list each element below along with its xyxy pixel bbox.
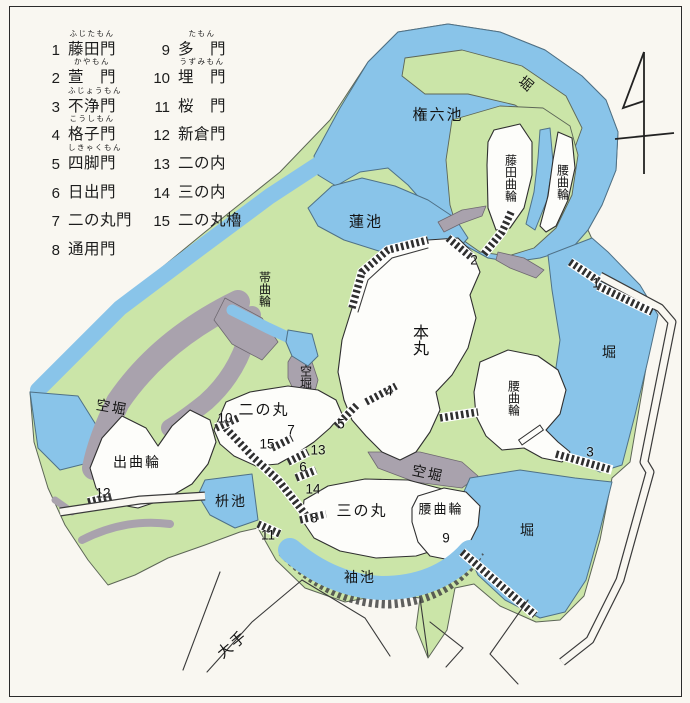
legend-gate-number: 2 xyxy=(36,70,60,87)
legend-item-gate-11: 11桜 門 xyxy=(146,87,242,116)
gate-number-8: 8 xyxy=(310,511,318,526)
legend-item-gate-5: 5しきゃくもん四脚門 xyxy=(36,144,132,173)
legend-gate-name: 不浄門 xyxy=(68,98,116,115)
map-label-権六池: 権六池 xyxy=(412,104,463,125)
legend-gate-number: 14 xyxy=(146,185,170,202)
gate-number-12: 12 xyxy=(95,486,110,501)
legend-furigana: しきゃくもん xyxy=(68,142,116,153)
legend-gate-name: 藤田門 xyxy=(68,41,116,58)
legend-gate-name: 二の内 xyxy=(178,155,226,172)
legend-item-gate-2: 2かやもん萱 門 xyxy=(36,59,132,88)
legend-furigana: ふじょうもん xyxy=(68,85,116,96)
gate-number-13: 13 xyxy=(310,443,325,458)
legend-item-gate-8: 8通用門 xyxy=(36,230,132,259)
legend-gate-number: 8 xyxy=(36,242,60,259)
map-label-帯曲輪: 帯曲輪 xyxy=(257,271,274,307)
legend-furigana: こうしもん xyxy=(68,113,116,124)
map-label-蓮池: 蓮池 xyxy=(349,211,383,232)
gate-number-7: 7 xyxy=(287,423,295,438)
gate-number-9: 9 xyxy=(442,531,450,546)
legend-gate-number: 13 xyxy=(146,156,170,173)
map-label-空堀: 空堀 xyxy=(298,365,315,389)
gate-number-11: 11 xyxy=(261,528,275,543)
legend-gate-name: 通用門 xyxy=(68,241,116,258)
legend-column-2: 9たもん多 門10うずみもん埋 門11桜 門12新倉門13二の内14三の内15二… xyxy=(146,30,242,259)
legend-gate-name: 新倉門 xyxy=(178,126,226,143)
legend-gate-number: 6 xyxy=(36,185,60,202)
gate-number-4: 4 xyxy=(385,384,393,399)
gate-number-6: 6 xyxy=(299,460,307,475)
legend-item-gate-13: 13二の内 xyxy=(146,144,242,173)
legend-gate-number: 11 xyxy=(146,99,170,116)
gate-number-14: 14 xyxy=(305,482,320,497)
legend-gate-number: 3 xyxy=(36,99,60,116)
map-label-藤田曲輪: 藤田曲輪 xyxy=(503,154,520,202)
legend-gate-name: 二の丸門 xyxy=(68,212,132,229)
legend-gate-name: 桜 門 xyxy=(178,98,226,115)
map-label-腰曲輪: 腰曲輪 xyxy=(506,380,523,416)
scanned-castle-map-page: 1ふじたもん藤田門2かやもん萱 門3ふじょうもん不浄門4こうしもん格子門5しきゃ… xyxy=(0,0,690,703)
gate-legend: 1ふじたもん藤田門2かやもん萱 門3ふじょうもん不浄門4こうしもん格子門5しきゃ… xyxy=(36,30,242,259)
map-label-堀: 堀 xyxy=(602,342,618,362)
map-label-本丸: 本丸 xyxy=(406,324,430,356)
legend-item-gate-3: 3ふじょうもん不浄門 xyxy=(36,87,132,116)
legend-furigana: うずみもん xyxy=(178,56,226,67)
gate-number-3: 3 xyxy=(586,445,594,460)
north-arrow xyxy=(615,52,674,174)
legend-gate-name: 多 門 xyxy=(178,41,226,58)
legend-gate-number: 1 xyxy=(36,42,60,59)
gate-number-5: 5 xyxy=(337,417,345,432)
legend-item-gate-14: 14三の内 xyxy=(146,173,242,202)
legend-gate-name: 三の内 xyxy=(178,184,226,201)
gate-number-15: 15 xyxy=(259,437,274,452)
map-label-出曲輪: 出曲輪 xyxy=(113,452,161,472)
legend-item-gate-15: 15二の丸櫓 xyxy=(146,202,242,231)
legend-furigana: ふじたもん xyxy=(68,28,116,39)
legend-gate-name: 四脚門 xyxy=(68,155,116,172)
legend-gate-name: 埋 門 xyxy=(178,69,226,86)
legend-item-gate-1: 1ふじたもん藤田門 xyxy=(36,30,132,59)
map-label-枡池: 枡池 xyxy=(215,491,247,511)
legend-gate-number: 7 xyxy=(36,213,60,230)
legend-gate-number: 5 xyxy=(36,156,60,173)
legend-gate-number: 9 xyxy=(146,42,170,59)
legend-gate-number: 12 xyxy=(146,127,170,144)
legend-gate-number: 15 xyxy=(146,213,170,230)
gate-number-1: 1 xyxy=(592,276,600,291)
map-label-腰曲輪: 腰曲輪 xyxy=(555,164,572,200)
legend-gate-number: 10 xyxy=(146,70,170,87)
legend-item-gate-7: 7二の丸門 xyxy=(36,202,132,231)
legend-item-gate-6: 6日出門 xyxy=(36,173,132,202)
map-label-三の丸: 三の丸 xyxy=(336,500,387,521)
gate-number-2: 2 xyxy=(470,253,478,268)
legend-furigana: たもん xyxy=(178,28,226,39)
map-label-堀: 堀 xyxy=(520,520,536,540)
map-label-袖池: 袖池 xyxy=(344,567,376,587)
legend-gate-name: 萱 門 xyxy=(68,69,116,86)
map-label-二の丸: 二の丸 xyxy=(238,399,289,420)
legend-item-gate-9: 9たもん多 門 xyxy=(146,30,242,59)
legend-column-1: 1ふじたもん藤田門2かやもん萱 門3ふじょうもん不浄門4こうしもん格子門5しきゃ… xyxy=(36,30,132,259)
legend-gate-name: 日出門 xyxy=(68,184,116,201)
legend-gate-name: 格子門 xyxy=(68,126,116,143)
legend-item-gate-4: 4こうしもん格子門 xyxy=(36,116,132,145)
legend-gate-name: 二の丸櫓 xyxy=(178,212,242,229)
map-label-腰曲輪: 腰曲輪 xyxy=(418,499,463,518)
gate-number-10: 10 xyxy=(217,411,232,426)
legend-item-gate-10: 10うずみもん埋 門 xyxy=(146,59,242,88)
legend-item-gate-12: 12新倉門 xyxy=(146,116,242,145)
legend-furigana: かやもん xyxy=(68,56,116,67)
moat-lower-right xyxy=(458,470,612,618)
legend-gate-number: 4 xyxy=(36,127,60,144)
